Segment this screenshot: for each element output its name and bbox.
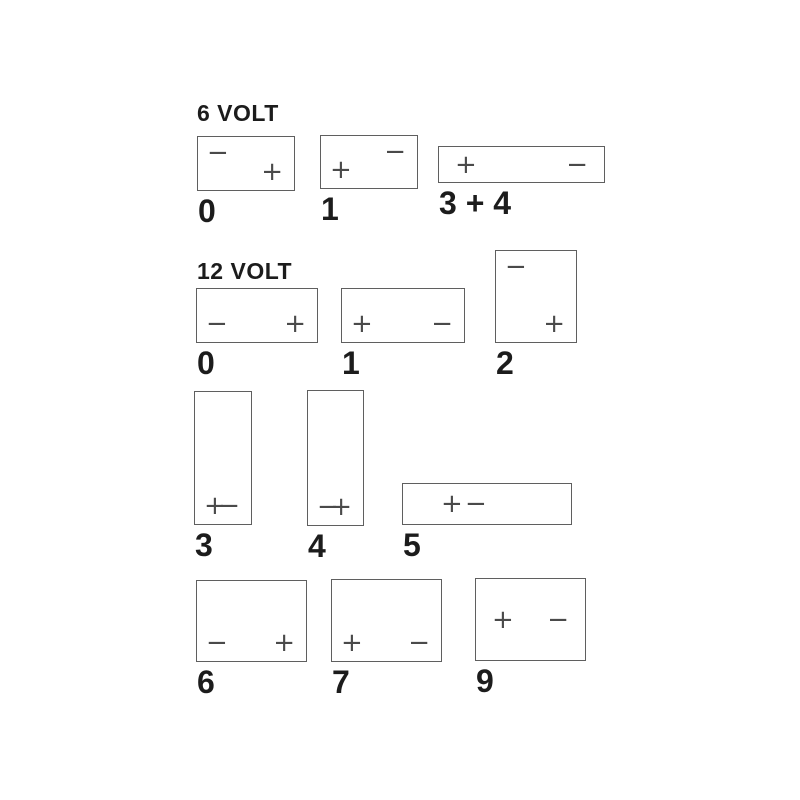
plus-terminal-icon: +	[351, 311, 373, 337]
battery-label: 1	[342, 347, 360, 379]
minus-terminal-icon: −	[206, 311, 228, 337]
plus-terminal-icon: +	[441, 491, 463, 517]
battery-box: +−	[331, 579, 442, 662]
minus-terminal-icon: −	[206, 630, 228, 656]
minus-terminal-icon: −	[384, 139, 406, 165]
battery-label: 2	[496, 347, 514, 379]
battery-label: 9	[476, 665, 494, 697]
battery-label: 6	[197, 666, 215, 698]
minus-terminal-icon: −	[505, 254, 527, 280]
minus-terminal-icon: −	[566, 152, 588, 178]
battery-label: 5	[403, 529, 421, 561]
minus-terminal-icon: −	[431, 311, 453, 337]
plus-terminal-icon: +	[273, 630, 295, 656]
minus-terminal-icon: −	[547, 607, 569, 633]
battery-label: 0	[197, 347, 215, 379]
plus-terminal-icon: +	[330, 157, 352, 183]
plus-terminal-icon: +	[330, 494, 352, 520]
plus-terminal-icon: +	[261, 159, 283, 185]
battery-box: −+	[495, 250, 577, 343]
plus-terminal-icon: +	[543, 311, 565, 337]
battery-box: −+	[307, 390, 364, 526]
battery-label: 1	[321, 193, 339, 225]
minus-terminal-icon: −	[207, 140, 229, 166]
battery-box: −+	[196, 288, 318, 343]
battery-box: −+	[320, 135, 418, 189]
battery-label: 0	[198, 195, 216, 227]
battery-box: +−	[341, 288, 465, 343]
battery-label: 3	[195, 529, 213, 561]
battery-label: 7	[332, 666, 350, 698]
minus-terminal-icon: −	[408, 630, 430, 656]
battery-terminal-layout-diagram: 6 VOLT−+0−+1+−3 + 412 VOLT−+0+−1−+2+−3−+…	[0, 0, 800, 800]
battery-box: +−	[475, 578, 586, 661]
section-title: 12 VOLT	[197, 259, 292, 284]
minus-terminal-icon: −	[465, 491, 487, 517]
battery-box: −+	[197, 136, 295, 191]
battery-box: +−	[402, 483, 572, 525]
battery-box: +−	[438, 146, 605, 183]
section-title: 6 VOLT	[197, 101, 279, 126]
battery-label: 3 + 4	[439, 187, 511, 219]
battery-box: −+	[196, 580, 307, 662]
minus-terminal-icon: −	[218, 493, 240, 519]
plus-terminal-icon: +	[341, 630, 363, 656]
battery-label: 4	[308, 530, 326, 562]
battery-box: +−	[194, 391, 252, 525]
plus-terminal-icon: +	[492, 607, 514, 633]
plus-terminal-icon: +	[455, 152, 477, 178]
plus-terminal-icon: +	[284, 311, 306, 337]
